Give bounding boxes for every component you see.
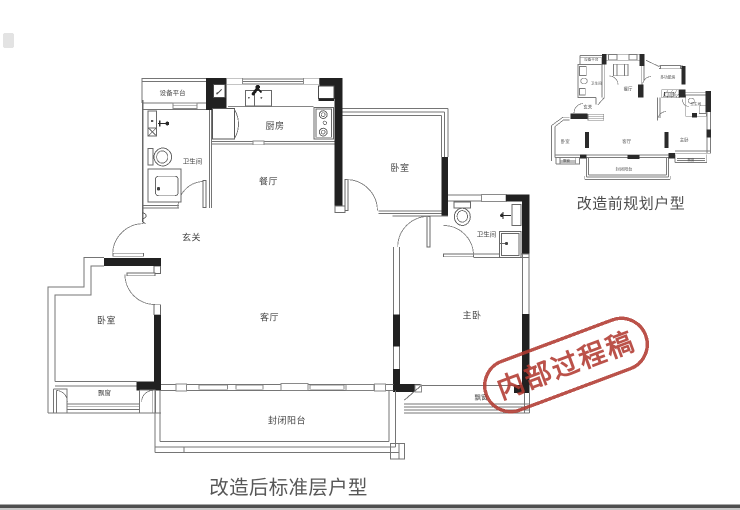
svg-text:餐厅: 餐厅 [259,175,278,186]
svg-text:卧室: 卧室 [390,162,409,173]
svg-text:厨房: 厨房 [265,120,284,131]
svg-text:玄关: 玄关 [182,232,201,243]
svg-text:封闭阳台: 封闭阳台 [268,415,306,426]
svg-text:飘窗: 飘窗 [98,388,111,397]
svg-text:设备平台: 设备平台 [160,88,186,97]
svg-text:卫生间: 卫生间 [690,101,701,106]
svg-text:主卧: 主卧 [462,310,481,321]
svg-text:卧室: 卧室 [561,138,570,145]
svg-text:卫生间: 卫生间 [477,229,497,238]
svg-text:餐厅: 餐厅 [624,86,633,93]
svg-text:改造后标准层户型: 改造后标准层户型 [209,477,367,499]
svg-text:玄关: 玄关 [583,103,592,110]
svg-text:飘窗: 飘窗 [563,158,570,163]
svg-text:卫生间: 卫生间 [591,80,602,85]
svg-text:封闭阳台: 封闭阳台 [616,166,633,173]
svg-text:卫生间: 卫生间 [183,157,203,166]
svg-text:主卧: 主卧 [680,137,689,144]
svg-text:改造前规划户型: 改造前规划户型 [577,196,686,213]
svg-text:客厅: 客厅 [622,138,631,145]
svg-text:设备平台: 设备平台 [584,56,599,61]
svg-text:客厅: 客厅 [260,312,279,323]
svg-text:飘窗: 飘窗 [688,157,695,162]
svg-text:多功能房: 多功能房 [660,75,675,80]
svg-text:卧室: 卧室 [97,314,116,325]
svg-text:生活阳台: 生活阳台 [663,92,677,97]
